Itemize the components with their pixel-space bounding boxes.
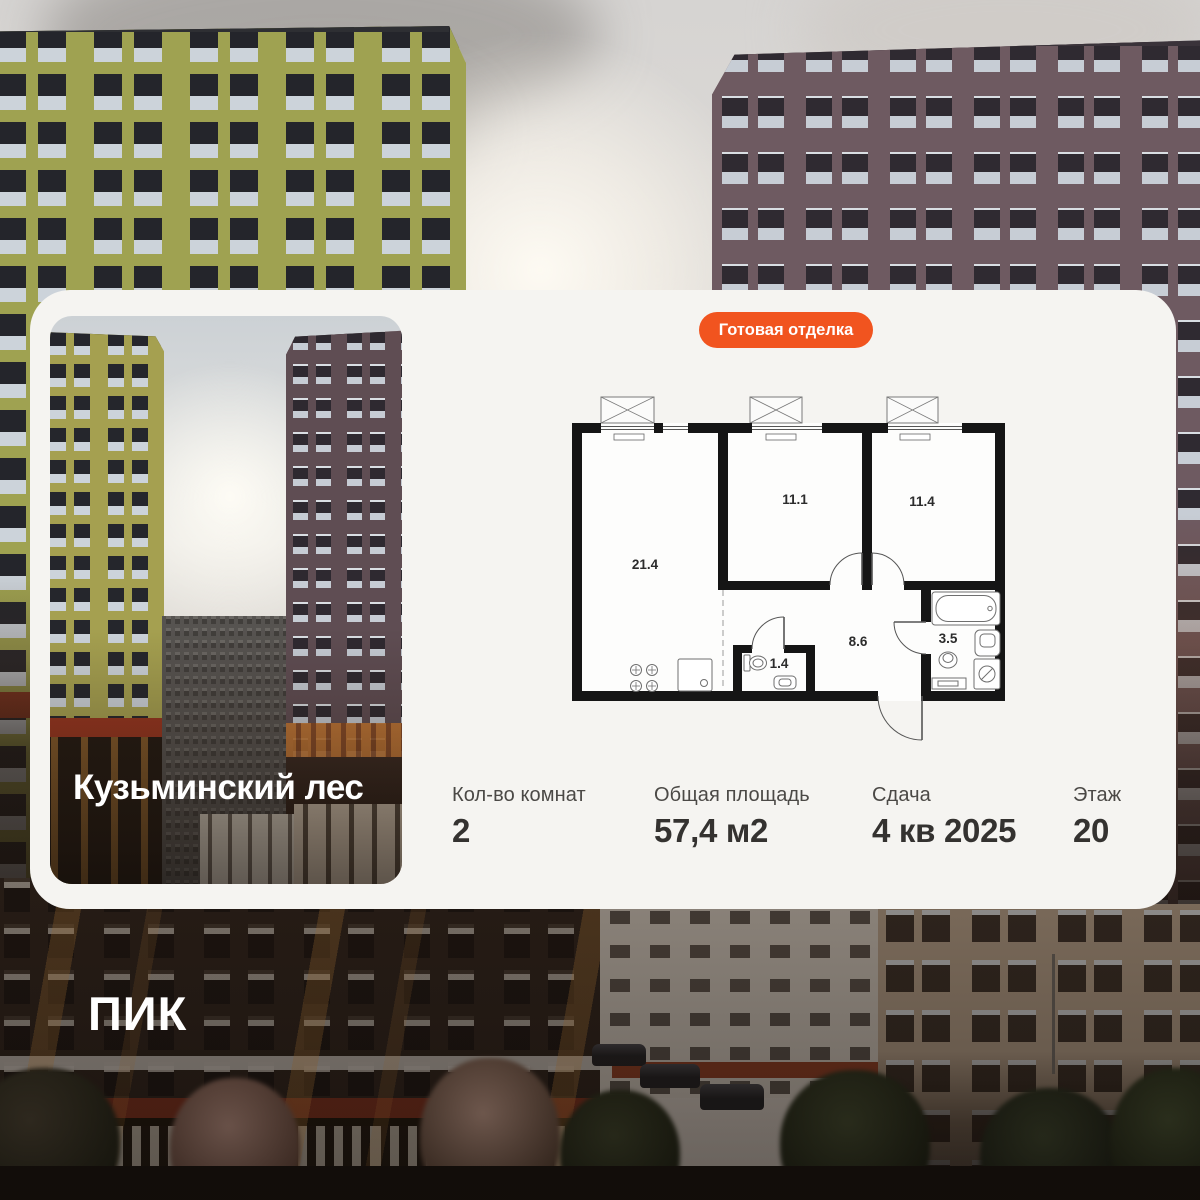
ground bbox=[0, 1166, 1200, 1200]
room-area-wc: 1.4 bbox=[770, 656, 789, 671]
spec-rooms: Кол-во комнат 2 bbox=[452, 784, 586, 850]
car bbox=[592, 1044, 646, 1066]
room-area-bathroom: 3.5 bbox=[939, 631, 958, 646]
room-area-living: 21.4 bbox=[632, 557, 659, 572]
lamp-pole bbox=[1052, 954, 1055, 1074]
spec-floor-label: Этаж bbox=[1073, 784, 1121, 807]
room-area-hallway: 8.6 bbox=[849, 634, 868, 649]
spec-delivery: Сдача 4 кв 2025 bbox=[872, 784, 1016, 850]
spec-floor-value: 20 bbox=[1073, 812, 1121, 850]
washing-machine bbox=[974, 659, 1000, 689]
room-area-bedroom1: 11.1 bbox=[782, 492, 808, 507]
pik-logo: ПИК bbox=[88, 986, 187, 1041]
spec-area-value: 57,4 м2 bbox=[654, 812, 810, 850]
spec-area-label: Общая площадь bbox=[654, 784, 810, 807]
wc-basin bbox=[774, 676, 796, 689]
spec-floor: Этаж 20 bbox=[1073, 784, 1121, 850]
bathtub bbox=[932, 592, 1000, 625]
car bbox=[700, 1084, 764, 1110]
project-photo: Кузьминский лес bbox=[50, 316, 402, 884]
spec-rooms-label: Кол-во комнат bbox=[452, 784, 586, 807]
spec-delivery-label: Сдача bbox=[872, 784, 1016, 807]
project-name: Кузьминский лес bbox=[73, 768, 363, 808]
finish-badge-label: Готовая отделка bbox=[719, 321, 854, 340]
car bbox=[640, 1064, 700, 1088]
kitchen-sink bbox=[678, 659, 712, 691]
floor-plan: 21.4 11.1 11.4 8.6 3.5 1.4 bbox=[570, 393, 1010, 745]
finish-badge: Готовая отделка bbox=[699, 312, 873, 348]
spec-area: Общая площадь 57,4 м2 bbox=[654, 784, 810, 850]
spec-rooms-value: 2 bbox=[452, 812, 586, 850]
real-estate-ad: Кузьминский лес Готовая отделка bbox=[0, 0, 1200, 1200]
room-area-bedroom2: 11.4 bbox=[909, 494, 935, 509]
window-boxes bbox=[601, 397, 938, 423]
spec-delivery-value: 4 кв 2025 bbox=[872, 812, 1016, 850]
bathroom-sink bbox=[975, 630, 1000, 656]
toilet bbox=[744, 655, 767, 671]
listing-card[interactable]: Кузьминский лес Готовая отделка bbox=[30, 290, 1176, 909]
